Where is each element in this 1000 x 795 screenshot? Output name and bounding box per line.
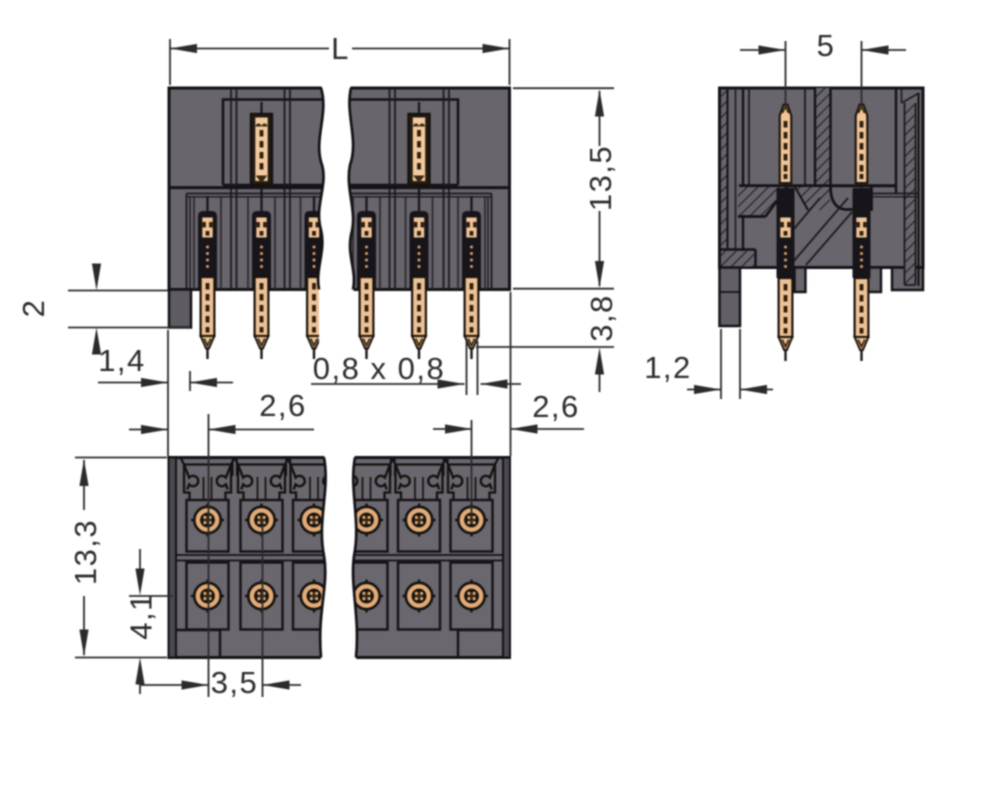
svg-text:1,2: 1,2 [644, 350, 692, 385]
svg-text:L: L [331, 31, 350, 66]
svg-text:13,5: 13,5 [583, 145, 618, 211]
svg-text:2: 2 [16, 299, 51, 318]
svg-text:2,6: 2,6 [532, 389, 580, 424]
svg-text:4,1: 4,1 [124, 592, 159, 640]
svg-text:3,8: 3,8 [584, 294, 619, 342]
svg-text:5: 5 [817, 28, 836, 63]
svg-text:3,5: 3,5 [211, 665, 259, 700]
svg-text:2,6: 2,6 [259, 388, 307, 423]
svg-text:13,3: 13,3 [68, 519, 103, 585]
svg-text:1,4: 1,4 [98, 343, 146, 378]
svg-text:0,8 x 0,8: 0,8 x 0,8 [313, 351, 445, 386]
